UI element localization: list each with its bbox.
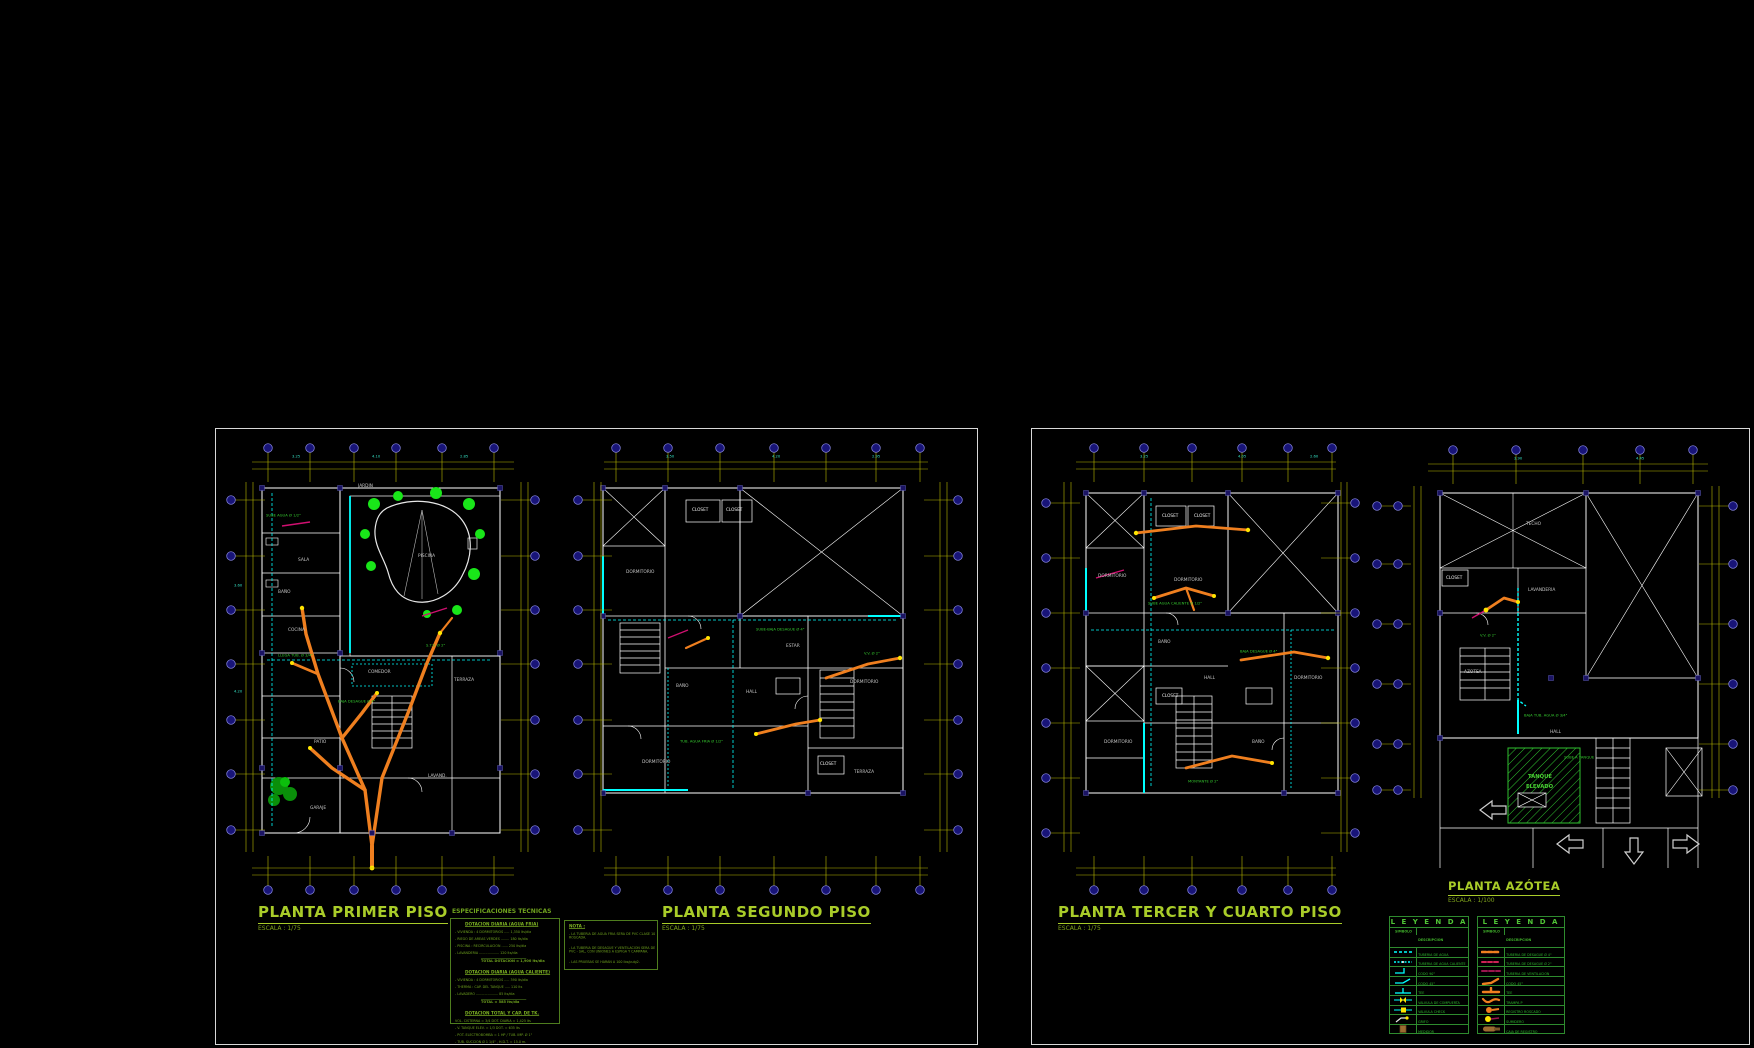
room-label: SALA [298,558,309,562]
room-label: HALL [1204,676,1215,680]
pipe-note-label: BAJA DESAGUE Ø 4" [1240,650,1277,654]
room-label: CLOSET [1162,514,1178,518]
dimension-label: 4.20 [772,455,780,459]
legend-row: TUBERIA DE AGUA CALIENTE [1390,958,1468,968]
spec-total: TOTAL DOTACION = 1,900 lts/dia [481,958,526,963]
water-pipes [1518,588,1526,734]
column-markers [601,486,906,796]
pipe-note-label: SUBE AGUA CALIENTE Ø 1/2" [1148,602,1202,606]
pipe-note-label: TUB. AGUA FRIA Ø 1/2" [680,740,723,744]
meter-icon [1390,1025,1417,1034]
tee-icon [1390,986,1417,995]
room-label: DORMITORIO [1174,578,1202,582]
spec-item: - RIEGO DE AREAS VERDES ........ 180 lts… [455,937,512,941]
room-label: PISCINA [418,554,435,558]
room-label: CLOSET [726,508,742,512]
room-label: LAVAND. [428,774,447,778]
check-valve-icon [1393,1006,1413,1014]
nota-item: - LA TUBERIA DE DESAGUE Y VENTILACION SE… [569,946,657,954]
dimension-label: 3.25 [292,455,300,459]
drain-pipe-4-icon [1478,948,1505,957]
stairs [1176,696,1212,768]
room-label: DORMITORIO [642,760,670,764]
legend-row: CAJA DE REGISTRO [1478,1025,1564,1034]
water-pipe-cold-icon [1390,948,1417,957]
pipe-note-label: SUBE-BAJA DESAGUE Ø 4" [756,628,805,632]
vent-pipes [1472,610,1486,618]
drain-pipe-2-icon [1478,958,1505,967]
plan2-scale: ESCALA : 1/75 [662,925,705,932]
room-label: JARDIN [358,484,373,488]
room-label: DORMITORIO [850,680,878,684]
elbow-90-icon [1390,967,1417,976]
plan4-title: PLANTA AZÓTEA [1448,879,1560,896]
gate-valve-icon [1390,996,1417,1005]
faucet-icon [1393,1015,1413,1023]
nota-title: NOTA : [569,924,631,929]
grid-layer [574,444,963,895]
spec-total: TOTAL = 585 lts/dia [481,999,526,1004]
spec-section-title: DOTACION DIARIA (AGUA CALIENTE) [465,970,531,975]
floor-drain-icon [1481,1015,1501,1023]
nota-item: - LA TUBERIA DE AGUA FRIA SERA DE PVC CL… [569,932,657,940]
pipe-note-label: MONTANTE Ø 2" [1188,780,1218,784]
spec-item: - THERMA : CAP. DEL TANQUE ..... 110 lts [455,985,512,989]
spec-item: - PISCINA : RECIRCULACION ...... 250 lts… [455,944,512,948]
plan4-scale: ESCALA : 1/100 [1448,897,1495,904]
p-trap-icon [1481,996,1501,1004]
floor-drain-icon [1478,1015,1505,1024]
elbow-45-icon [1390,977,1417,986]
meter-icon [1393,1025,1413,1033]
pool-outline [375,501,477,602]
room-label: AZOTEA [1464,670,1482,674]
drain-tee-icon [1478,986,1505,995]
room-label: CLOSET [820,762,836,766]
legend-col-simbolo: SIMBOLO [1390,928,1417,935]
water-pipe-cold-icon [1393,948,1413,956]
floor-plan-tercer-cuarto-piso: DORMITORIOCLOSETCLOSETDORMITORIOBAÑOHALL… [1036,438,1361,903]
room-label: GARAJE [310,806,326,810]
plan3-scale: ESCALA : 1/75 [1058,925,1101,932]
dimension-label: 4.20 [234,690,242,694]
vent-pipe-icon [1481,967,1501,975]
dimension-label: 2.60 [1310,455,1318,459]
spec-item: - VIVIENDA : 4 DORMITORIOS ..... 390 lts… [455,978,512,982]
threaded-register-icon [1478,1006,1505,1015]
floor-plan-azotea: TECHOCLOSETLAVANDERIAAZOTEATANQUEELEVADO… [1368,438,1743,878]
spec-box-nota: NOTA :- LA TUBERIA DE AGUA FRIA SERA DE … [564,920,658,970]
room-label: ESTAR [786,644,800,648]
water-pipes [1086,498,1334,793]
nota-item: - LAS PRUEBAS SE HARAN A 100 lbs/pulg2. [569,960,657,964]
water-pipe-hot-icon [1390,958,1417,967]
floor-plan-segundo-piso: DORMITORIOCLOSETCLOSETESTARDORMITORIOBAÑ… [568,438,968,903]
room-label: CLOSET [1194,514,1210,518]
plan2-title: PLANTA SEGUNDO PISO [662,903,871,924]
legend-row: TUBERIA DE DESAGUE Ø 2" [1478,958,1564,968]
drain-pipes [1136,526,1328,768]
pipe-note-label: SUBE AGUA Ø 1/2" [266,514,301,518]
legend-desague: L E Y E N D ASIMBOLO DESCRIPCION TUBERIA… [1477,916,1565,1034]
drain-pipe-2-icon [1481,958,1501,966]
plan3-title: PLANTA TERCER Y CUARTO PISO [1058,903,1342,924]
dimension-label: 4.05 [1238,455,1246,459]
room-label: TERRAZA [854,770,874,774]
pipe-note-label: S.T.V. Ø 2" [426,644,445,648]
room-label: CLOSET [1162,694,1178,698]
dimension-label: 3.50 [666,455,674,459]
floor-plan-segundo-piso-drawing [568,438,968,903]
floor-plan-azotea-drawing [1368,438,1743,878]
room-label: DORMITORIO [1294,676,1322,680]
dimension-label: 2.85 [460,455,468,459]
elbow-90-icon [1393,967,1413,975]
pipe-note-label: V.V. Ø 2" [1480,634,1496,638]
room-label: CLOSET [1446,576,1462,580]
dimension-label: 3.60 [234,584,242,588]
elbow-45-icon [1393,977,1413,985]
room-label: TANQUE [1528,774,1552,779]
floor-plan-tercer-cuarto-piso-drawing [1036,438,1361,903]
pipe-note-label: LLEGA TUB. Ø 3/4" [278,654,313,658]
spec-item: - LAVADERO ..................... 85 lts/… [455,992,512,996]
room-label: BAÑO [278,590,291,594]
room-label: BAÑO [1158,640,1171,644]
water-pipe-hot-icon [1393,958,1413,966]
drain-pipes [1486,598,1518,610]
spec-section-title: DOTACION DIARIA (AGUA FRIA) [465,922,531,927]
gate-valve-icon [1393,996,1413,1004]
dimension-label: 4.45 [1636,457,1644,461]
room-label: TECHO [1526,522,1541,526]
drain-pipe-4-icon [1481,948,1501,956]
pipe-note-label: BAJA DESAGUE Ø 4" [338,700,375,704]
room-label: ELEVADO [1526,784,1553,789]
plan1-scale: ESCALA : 1/75 [258,925,301,932]
cad-canvas: { "drawing": { "type": "plano sanitario … [0,0,1754,1048]
dimension-label: 2.95 [872,455,880,459]
pipe-note-label: V.V. Ø 2" [864,652,880,656]
legend-row: MEDIDOR [1390,1025,1468,1034]
room-label: CLOSET [692,508,708,512]
legend-row: TUBERIA DE DESAGUE Ø 4" [1478,948,1564,958]
room-label: HALL [1550,730,1561,734]
room-label: DORMITORIO [1104,740,1132,744]
p-trap-icon [1478,996,1505,1005]
plan1-title: PLANTA PRIMER PISO [258,903,448,924]
legend-title: L E Y E N D A [1478,917,1564,928]
dimension-label: 3.90 [1514,457,1522,461]
grid-layer [1373,446,1738,798]
room-label: PATIO [314,740,326,744]
inspection-box-icon [1478,1025,1505,1034]
spec-item: - TUB. SUCCION Ø 1 1/4" , H.D.T. = 15.0 … [455,1040,512,1044]
fixture-dots [1134,528,1330,765]
drain-elbow-icon [1478,977,1505,986]
legend-row: VALVULA DE COMPUERTA [1390,996,1468,1006]
spec-item: - VIVIENDA : 4 DORMITORIOS ..... 1,350 l… [455,930,512,934]
drain-tee-icon [1481,987,1501,995]
spec-section-title: DOTACION TOTAL Y CAP. DE TK. [465,1011,531,1016]
room-label: COCINA [288,628,305,632]
spec-header: ESPECIFICACIONES TECNICAS [452,908,551,915]
room-label: LAVANDERIA [1528,588,1555,592]
threaded-register-icon [1481,1006,1501,1014]
dimension-label: 4.10 [372,455,380,459]
room-label: BAÑO [1252,740,1265,744]
drain-elbow-icon [1481,977,1501,985]
floor-plan-primer-piso: JARDINPISCINASALABAÑOCOCINACOMEDORTERRAZ… [222,438,542,903]
pipe-note-label: BAJA TUB. AGUA Ø 3/4" [1524,714,1567,718]
faucet-icon [1390,1015,1417,1024]
room-label: HALL [746,690,757,694]
legend-col-simbolo: SIMBOLO [1478,928,1505,935]
room-label: DORMITORIO [626,570,654,574]
vent-pipes [668,630,688,638]
spec-item: - V. TANQUE ELEV. = 1/3 DOT. = 635 lts [455,1026,512,1030]
room-label: DORMITORIO [1098,574,1126,578]
garden-bush [268,777,297,806]
inspection-box-icon [1481,1025,1501,1033]
spec-item: - POT. ELECTROBOMBA = 1 HP / TUB. IMP. Ø… [455,1033,512,1037]
pipe-note-label: SUBE A TANQUE [1564,756,1594,760]
room-label: COMEDOR [368,670,391,674]
spec-item: VOL. CISTERNA = 3/4 DOT. DIARIA = 1,425 … [455,1019,512,1023]
vent-pipe-icon [1478,967,1505,976]
room-label: TERRAZA [454,678,474,682]
check-valve-icon [1390,1006,1417,1015]
dimension-label: 3.25 [1140,455,1148,459]
tee-icon [1393,987,1413,995]
spec-item: - LAVANDERIA ................... 120 lts… [455,951,512,955]
room-label: BAÑO [676,684,689,688]
legend-title: L E Y E N D A [1390,917,1468,928]
legend-agua: L E Y E N D ASIMBOLO DESCRIPCION TUBERIA… [1389,916,1469,1034]
spec-box-dotacion: DOTACION DIARIA (AGUA FRIA)- VIVIENDA : … [450,918,560,1024]
